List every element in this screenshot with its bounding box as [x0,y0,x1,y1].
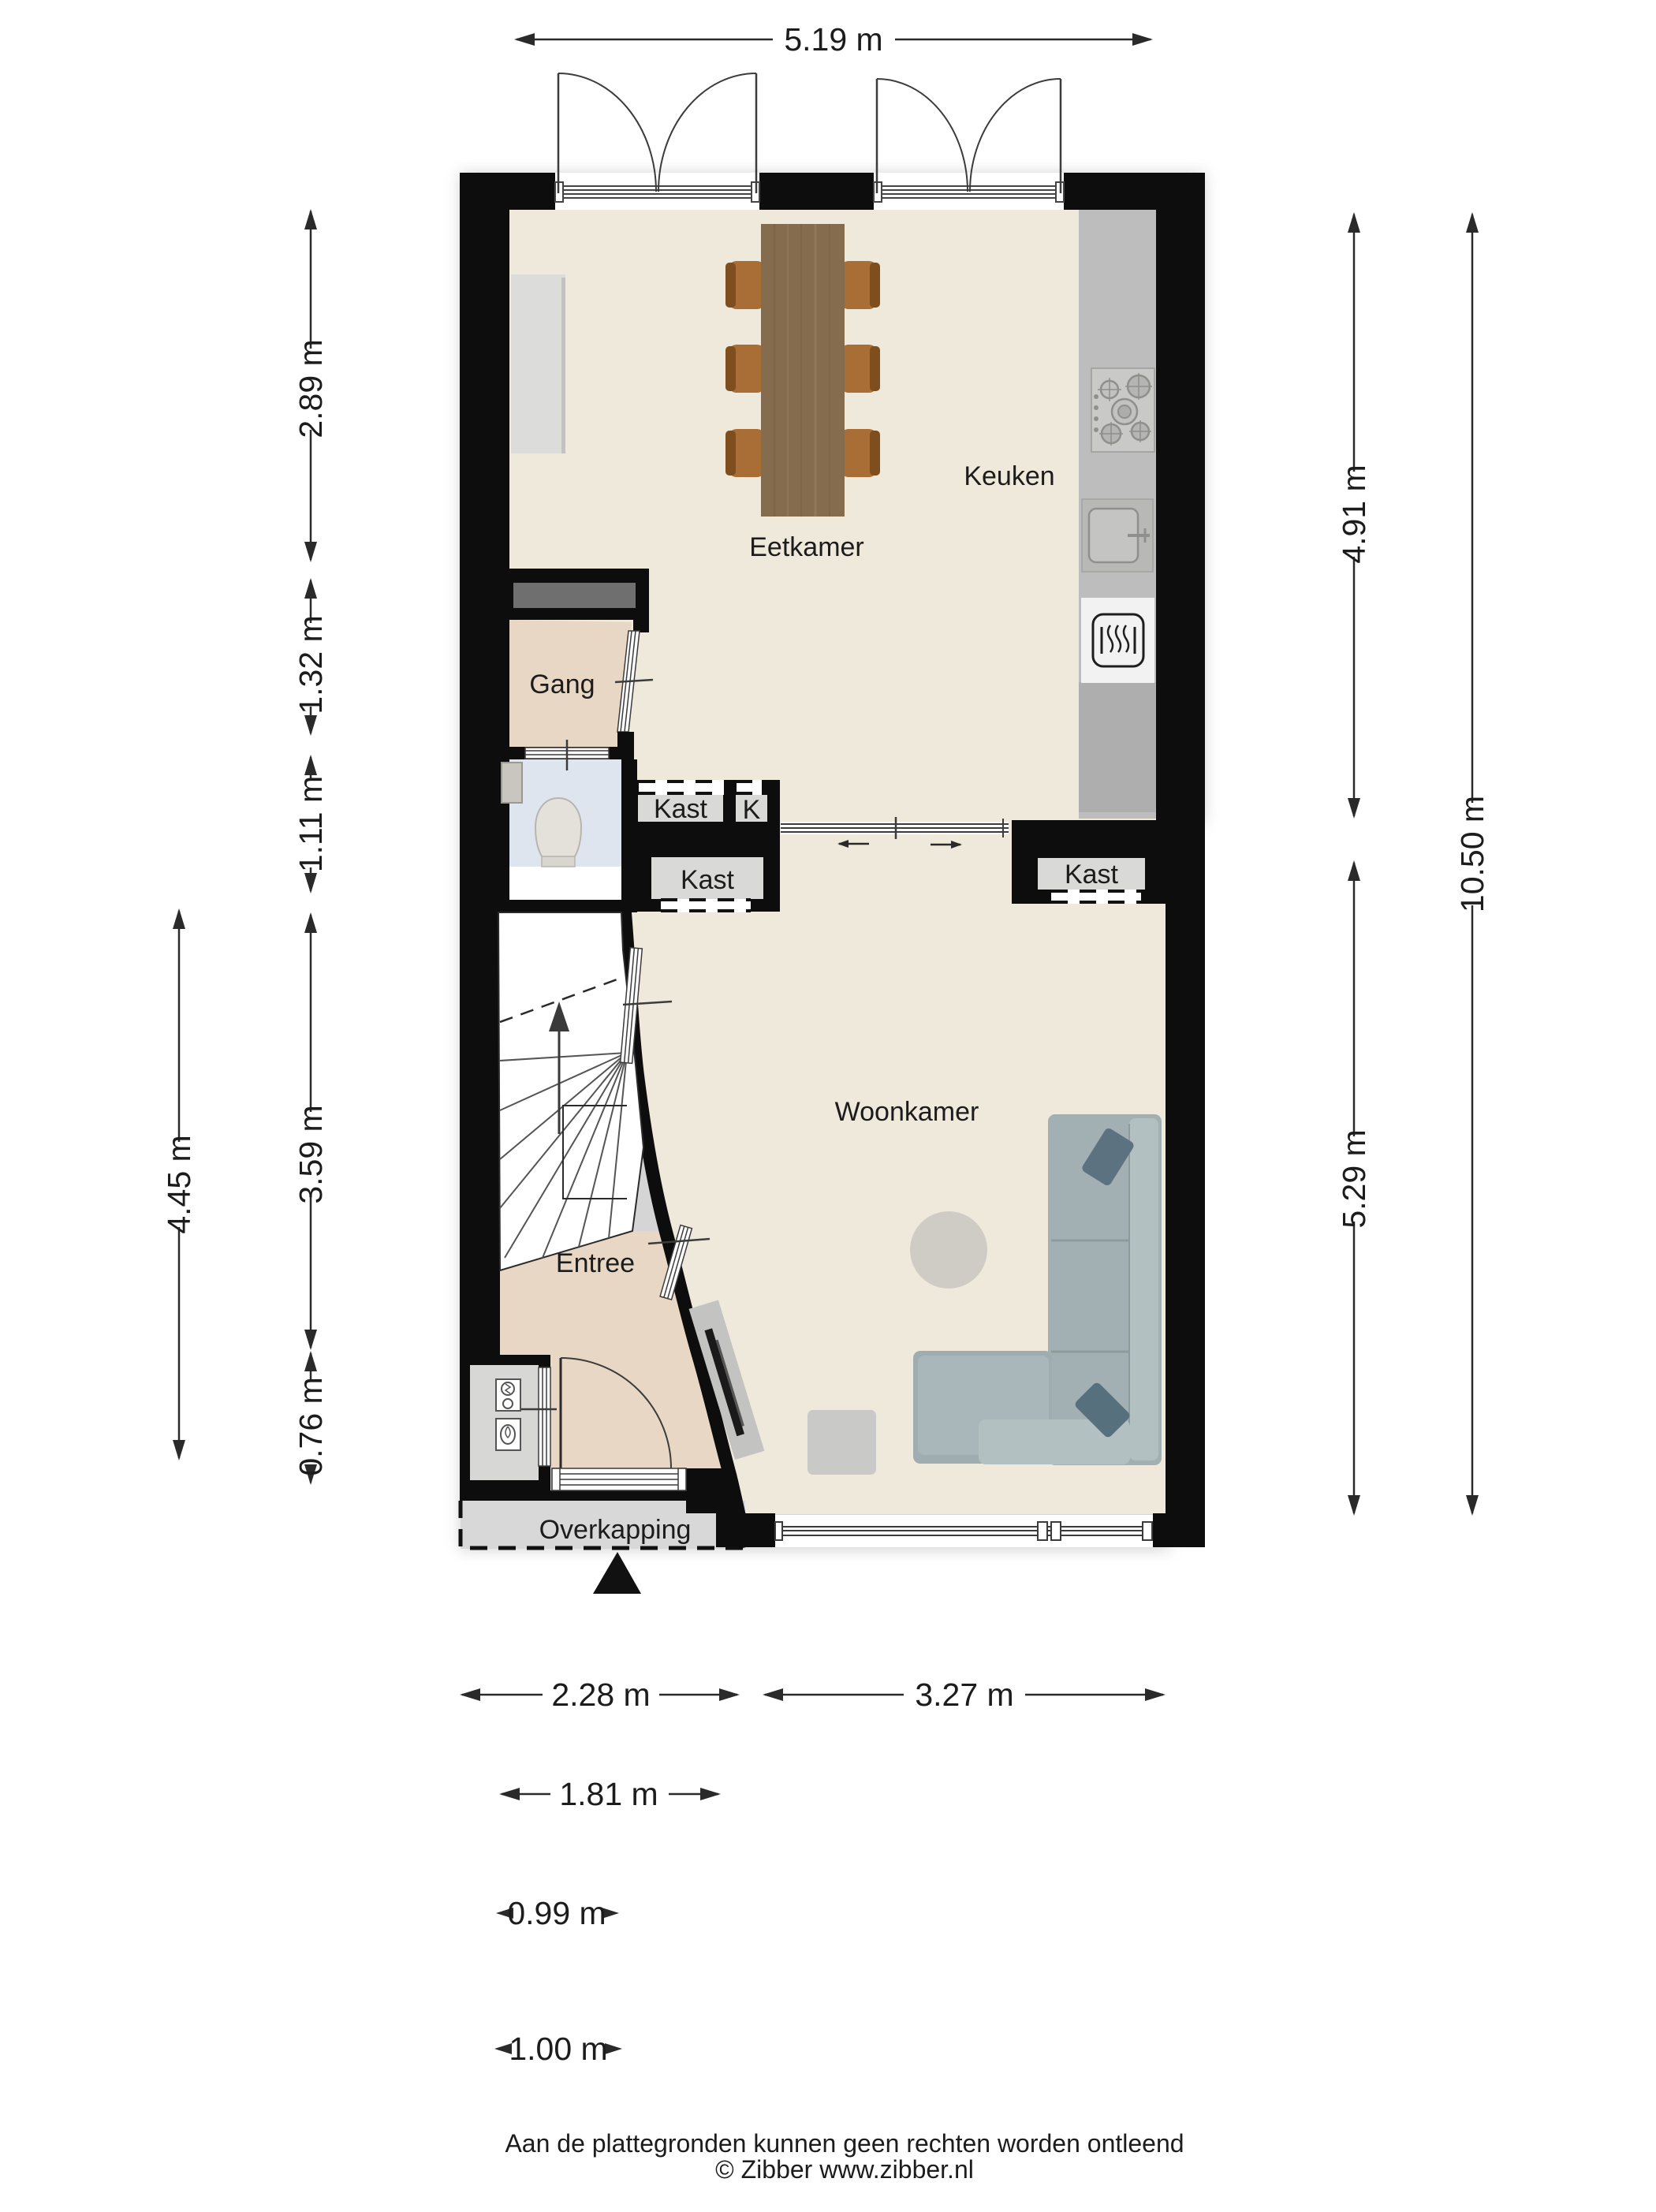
svg-text:Kast: Kast [1065,860,1119,890]
svg-text:Kast: Kast [681,865,735,895]
svg-text:4.45 m: 4.45 m [161,1135,197,1233]
svg-text:Kast: Kast [654,794,708,824]
svg-text:2.89 m: 2.89 m [293,339,329,438]
svg-text:0.76 m: 0.76 m [293,1377,329,1475]
svg-text:0.99 m: 0.99 m [507,1895,606,1931]
svg-text:5.29 m: 5.29 m [1336,1129,1372,1228]
svg-text:Aan de plattegronden kunnen ge: Aan de plattegronden kunnen geen rechten… [505,2129,1184,2158]
svg-text:2.28 m: 2.28 m [551,1677,650,1713]
svg-text:Woonkamer: Woonkamer [835,1097,979,1127]
svg-text:Keuken: Keuken [964,461,1054,491]
svg-text:3.59 m: 3.59 m [293,1105,329,1203]
svg-text:5.19 m: 5.19 m [784,21,882,58]
svg-text:3.27 m: 3.27 m [915,1677,1013,1713]
svg-text:1.00 m: 1.00 m [509,2031,607,2067]
svg-text:Entree: Entree [556,1248,635,1278]
svg-text:© Zibber www.zibber.nl: © Zibber www.zibber.nl [715,2155,974,2184]
svg-text:4.91 m: 4.91 m [1336,464,1372,563]
svg-text:1.81 m: 1.81 m [559,1776,658,1812]
svg-text:10.50 m: 10.50 m [1454,796,1490,912]
svg-text:1.32 m: 1.32 m [293,615,329,714]
svg-text:Eetkamer: Eetkamer [749,532,864,562]
svg-text:1.11 m: 1.11 m [293,776,329,872]
svg-text:K: K [743,795,761,825]
svg-text:Overkapping: Overkapping [539,1515,692,1545]
svg-text:Gang: Gang [529,670,595,699]
